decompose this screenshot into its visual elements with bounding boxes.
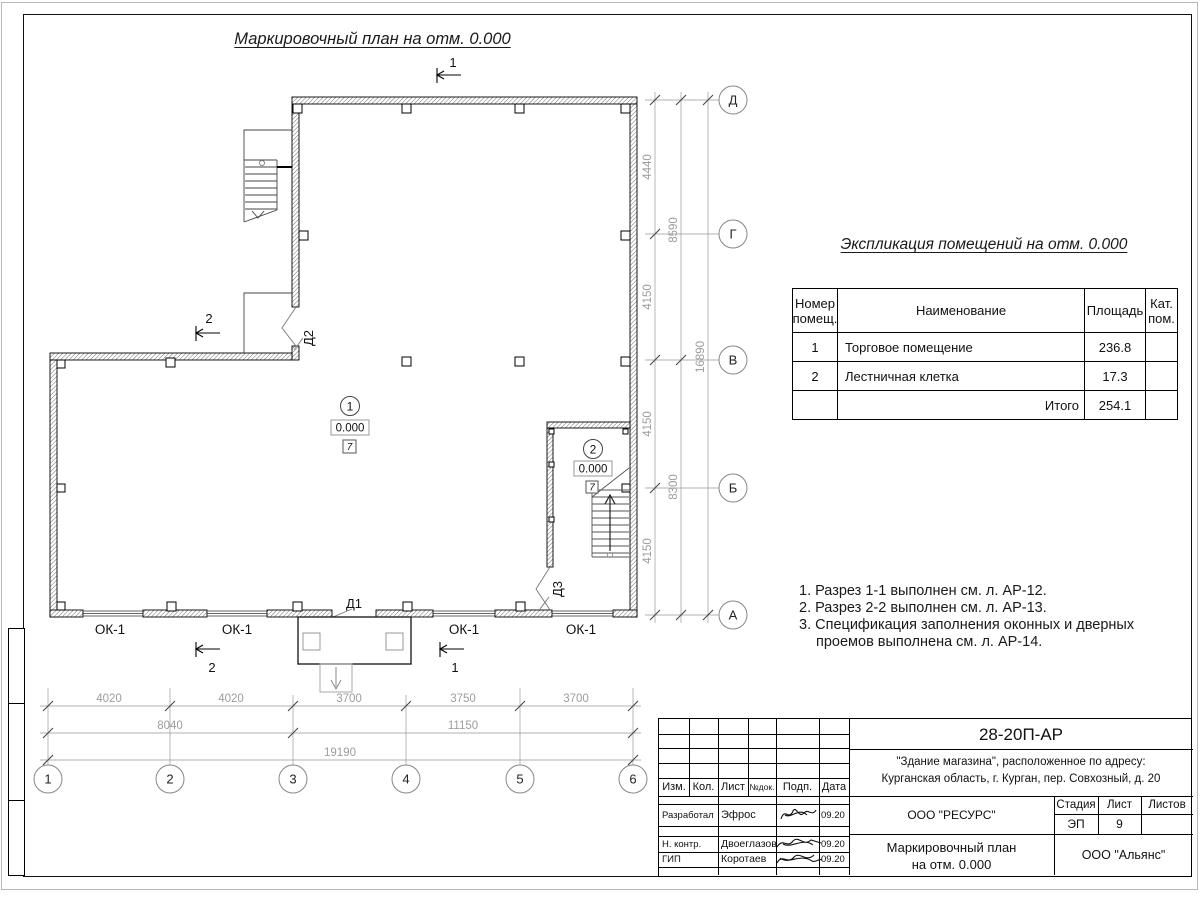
tb-sheets-label: Листов [1141,797,1193,813]
svg-text:3750: 3750 [450,693,476,705]
table-total-row: Итого 254.1 [793,391,1177,419]
exterior-stair [244,130,292,222]
row2-num: 2 [793,362,838,391]
signature-gip [773,850,825,868]
section-label-2-left: 2 [205,311,212,326]
col-header-number: Номер помещ. [793,289,838,333]
tb-dev-date: 09.20 [821,810,845,821]
tb-gip-role: ГИП [662,854,681,865]
svg-text:4020: 4020 [218,693,244,705]
tb-dev-name: Эфрос [721,809,756,821]
svg-text:5: 5 [516,772,523,787]
room-tag-1: 1 0.000 7 [331,397,369,454]
section-label-1-bottom: 1 [451,660,458,675]
section-label-2-bottom: 2 [208,660,215,675]
svg-text:8590: 8590 [668,217,680,243]
window-label-4: ОК-1 [566,622,596,637]
explication-title: Экспликация помещений на отм. 0.000 [792,236,1176,254]
tb-dev-role: Разработал [662,810,714,821]
col-header-cat: Кат. пом. [1146,289,1177,333]
explication-table: Номер помещ. Наименование Площадь Кат. п… [792,288,1178,420]
row1-area: 236.8 [1085,333,1146,362]
svg-text:1: 1 [347,400,354,414]
svg-text:А: А [729,608,738,623]
tb-drawing-title1: Маркировочный план [849,838,1054,856]
total-area: 254.1 [1085,391,1146,419]
door-label-d2: Д2 [301,330,316,346]
row1-cat [1146,333,1177,362]
svg-text:8040: 8040 [157,720,183,732]
tb-doc-code: 28-20П-АР [849,721,1193,748]
window-label-3: ОК-1 [449,622,479,637]
svg-text:3700: 3700 [563,693,589,705]
notes: 1. Разрез 1-1 выполнен см. л. АР-12. 2. … [799,583,1179,651]
window-label-2: ОК-1 [222,622,252,637]
svg-text:4150: 4150 [642,284,654,310]
svg-text:4020: 4020 [96,693,122,705]
svg-text:Б: Б [729,481,738,496]
svg-text:4150: 4150 [642,411,654,437]
door-label-d1: Д1 [346,596,362,611]
svg-text:19190: 19190 [324,747,356,759]
svg-text:4: 4 [402,772,409,787]
note-line: 3. Спецификация заполнения оконных и две… [799,617,1179,634]
svg-text:11150: 11150 [448,720,478,732]
tb-col-kol: Кол. [689,779,718,795]
table-row: 2 Лестничная клетка 17.3 [793,362,1177,391]
tb-gip-name: Коротаев [721,853,766,865]
tb-col-list: Лист [718,779,748,795]
row2-name: Лестничная клетка [838,362,1085,391]
bottom-axis-bubbles: 1 2 3 4 5 6 [34,765,647,793]
svg-text:3700: 3700 [336,693,362,705]
svg-text:16890: 16890 [695,341,707,373]
bottom-dimensions: 4020 4020 3700 3750 3700 8040 11150 1919… [40,688,641,765]
note-line: 2. Разрез 2-2 выполнен см. л. АР-13. [799,600,1179,617]
tb-org-designer: ООО "РЕСУРС" [849,796,1054,834]
total-cat [1146,391,1177,419]
right-dimensions: 4440 4150 4150 4150 8590 8300 16890 [642,92,719,623]
explication-header-row: Номер помещ. Наименование Площадь Кат. п… [793,289,1177,333]
svg-text:0.000: 0.000 [336,423,365,435]
tb-col-podp: Подп. [776,779,819,795]
tb-stage-value: ЭП [1054,814,1098,834]
tb-ncontr-name: Двоеглазов [721,838,777,850]
tb-col-ndok: №док. [748,779,776,795]
title-block: Изм. Кол. Лист №док. Подп. Дата Разработ… [658,718,1192,877]
svg-text:Д: Д [729,93,738,108]
svg-text:В: В [729,353,738,368]
tb-org-customer: ООО "Альянс" [1054,834,1193,875]
svg-text:7: 7 [347,442,353,453]
tb-object-line1: "Здание магазина", расположенное по адре… [855,753,1187,771]
table-row: 1 Торговое помещение 236.8 [793,333,1177,362]
svg-text:0.000: 0.000 [579,464,608,476]
signature-dev [777,803,819,825]
row2-area: 17.3 [1085,362,1146,391]
tb-sheet-label: Лист [1098,797,1141,813]
tb-col-data: Дата [819,779,849,795]
svg-text:1: 1 [44,772,51,787]
row2-cat [1146,362,1177,391]
tb-stage-label: Стадия [1054,797,1098,813]
svg-text:2: 2 [590,443,597,457]
col-header-area: Площадь [1085,289,1146,333]
section-label-1-top: 1 [449,55,456,70]
svg-text:Г: Г [729,227,736,242]
tb-object-line2: Курганская область, г. Курган, пер. Совх… [855,770,1187,788]
note-line: проемов выполнена см. л. АР-14. [799,634,1179,651]
right-axis-bubbles: Д Г В Б А [719,86,747,629]
svg-text:8300: 8300 [668,474,680,500]
svg-text:4440: 4440 [642,154,654,180]
tb-ncontr-role: Н. контр. [662,839,701,850]
tb-sheet-value: 9 [1098,814,1141,834]
svg-text:7: 7 [589,483,595,494]
entrance-porch [298,617,411,692]
section-markers [196,68,464,657]
svg-text:6: 6 [629,772,636,787]
tb-col-izm: Изм. [659,779,689,795]
svg-text:2: 2 [166,772,173,787]
window-label-1: ОК-1 [95,622,125,637]
svg-text:3: 3 [289,772,296,787]
row1-num: 1 [793,333,838,362]
total-label: Итого [838,391,1085,419]
total-empty [793,391,838,419]
svg-text:4150: 4150 [642,538,654,564]
door-label-d3: Д3 [550,581,565,597]
drawing-sheet: Маркировочный план на отм. 0.000 [0,0,1200,900]
col-header-name: Наименование [838,289,1085,333]
row1-name: Торговое помещение [838,333,1085,362]
note-line: 1. Разрез 1-1 выполнен см. л. АР-12. [799,583,1179,600]
door-leaves [282,307,550,628]
tb-drawing-title2: на отм. 0.000 [849,855,1054,873]
